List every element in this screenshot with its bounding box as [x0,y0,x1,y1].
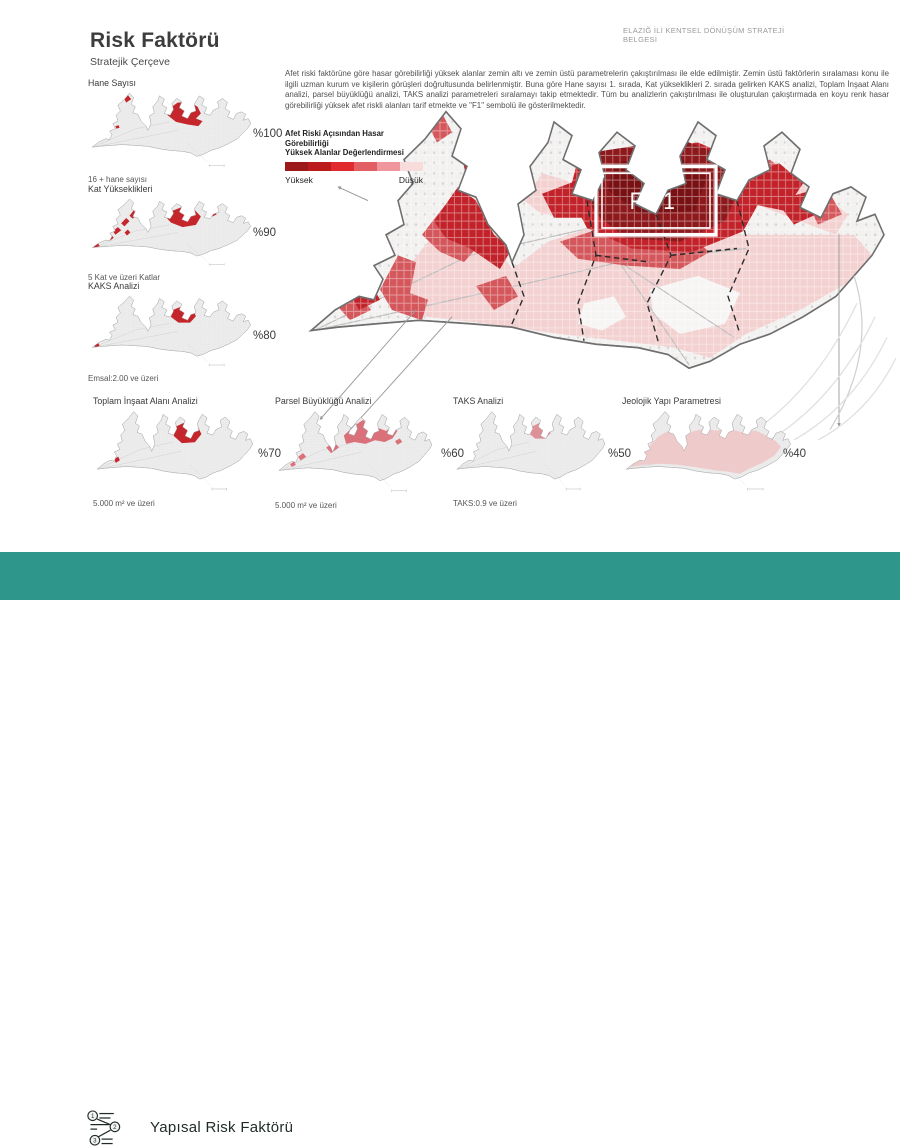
document-header-label: ELAZIĞ İLİ KENTSEL DÖNÜŞÜM STRATEJİ BELG… [623,26,798,44]
mini-map-title: KAKS Analizi [88,281,254,291]
mini-map-card-kat: Kat Yükseklikleri 5 Kat ve üzeri Katlar [88,184,254,282]
keym-logo-divider [853,1114,854,1137]
keym-logo-subtext: kentsel yenileme merkezi [859,1115,881,1135]
scale-bar [209,164,224,167]
scale-bar [212,488,227,491]
mini-map-caption: 5.000 m² ve üzeri [275,501,435,510]
mini-map-weight: %40 [783,448,806,460]
step-1-number: 1 [91,1113,95,1120]
mini-map-title: Hane Sayısı [88,78,254,88]
step-3-number: 3 [93,1137,97,1144]
legend-color-step [285,162,308,171]
mini-map-parsel [275,408,435,500]
mini-map-hane [88,90,254,174]
scale-bar [209,263,224,265]
page-title: Risk Faktörü [90,29,220,53]
f1-zone-label: F 1 [630,188,683,215]
legend-title-line2: Yüksek Alanlar Değerlendirmesi [285,148,425,158]
mini-map-card-hane: Hane Sayısı 16 + hane sayısı [88,78,254,184]
mini-map-title: Jeolojik Yapı Parametresi [622,396,794,406]
legend-label-low: Düşük [399,175,423,185]
keym-logo: keym kentsel yenileme merkezi [781,1112,881,1138]
scale-bar [566,488,580,491]
keym-logo-text: keym [781,1112,847,1138]
mini-map-caption: 16 + hane sayısı [88,175,254,184]
mini-map-card-kaks: KAKS Analizi Emsal:2.00 ve üzeri [88,281,254,383]
mini-map-card-toplam: Toplam İnşaat Alanı Analizi 5.000 m² ve … [93,396,256,508]
legend-color-step [354,162,377,171]
scale-bar [209,364,224,366]
footer-bar: 1 2 3 Yapısal Risk Faktörü keym kentsel … [0,552,900,600]
mini-map-caption: Emsal:2.00 ve üzeri [88,374,254,383]
footer-section-title: Yapısal Risk Faktörü [150,1119,293,1136]
mini-map-jeolojik [622,408,794,498]
mini-map-toplam [93,408,256,498]
mini-map-kat [88,196,254,272]
mini-map-weight: %90 [253,227,276,239]
scale-bar [748,488,763,491]
mini-map-caption: 5.000 m² ve üzeri [93,499,256,508]
legend-title-line1: Afet Riski Açısından Hasar Görebilirliği [285,129,425,148]
legend-gradient-bar [285,162,423,171]
legend-color-step [308,162,331,171]
legend-color-step [331,162,354,171]
mini-map-caption: TAKS:0.9 ve üzeri [453,499,608,508]
mini-map-title: Toplam İnşaat Alanı Analizi [93,396,256,406]
step-2-number: 2 [113,1124,117,1131]
legend-label-high: Yüksek [285,175,313,185]
mini-map-taks [453,408,608,498]
mini-map-weight: %80 [253,330,276,342]
mini-map-title: Kat Yükseklikleri [88,184,254,194]
mini-map-weight: %100 [253,128,282,140]
mini-map-card-taks: TAKS Analizi TAKS:0.9 ve üzeri [453,396,608,508]
mini-map-title: TAKS Analizi [453,396,608,406]
ranking-flow-icon: 1 2 3 [82,1108,130,1148]
mini-map-caption [622,499,794,508]
mini-map-card-jeolojik: Jeolojik Yapı Parametresi [622,396,794,508]
risk-legend: Afet Riski Açısından Hasar Görebilirliği… [285,129,425,185]
scale-bar [392,489,406,492]
legend-color-step [377,162,400,171]
mini-map-kaks [88,293,254,373]
mini-map-card-parsel: Parsel Büyüklüğü Analizi 5.000 m² ve üze… [275,396,435,510]
page-subtitle: Stratejik Çerçeve [90,56,170,68]
legend-color-step [400,162,423,171]
mini-map-title: Parsel Büyüklüğü Analizi [275,396,435,406]
